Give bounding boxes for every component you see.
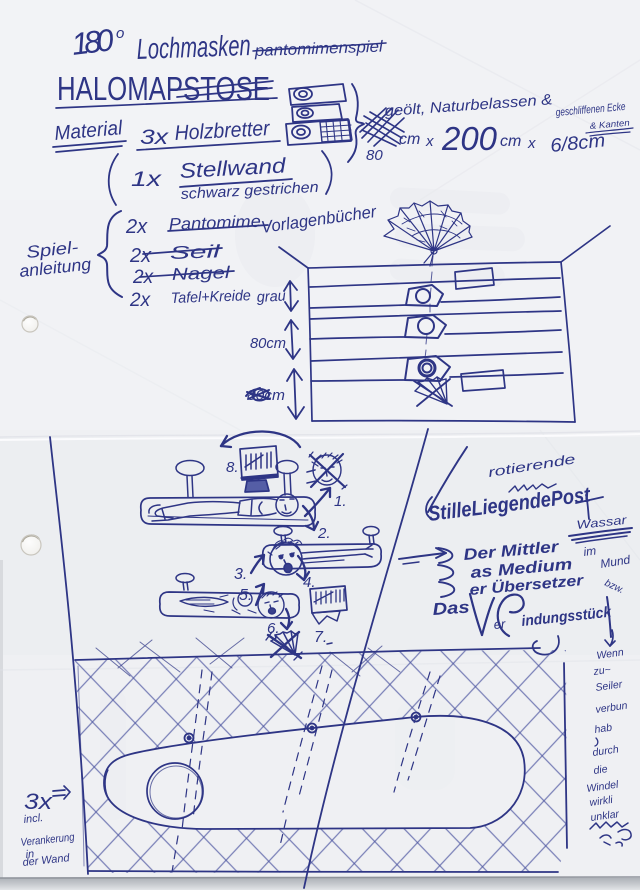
svg-text:grau: grau (256, 287, 286, 306)
svg-text:2x: 2x (129, 245, 152, 267)
svg-text:Lochmasken: Lochmasken (136, 30, 251, 66)
svg-text:80cm: 80cm (250, 335, 286, 352)
svg-text:200: 200 (441, 120, 498, 157)
svg-text:hab: hab (594, 722, 613, 736)
svg-text:die: die (593, 763, 609, 777)
svg-text:x: x (425, 133, 434, 150)
svg-text:3x: 3x (140, 126, 170, 149)
svg-text:80: 80 (366, 147, 383, 164)
svg-text:3x: 3x (24, 789, 53, 814)
svg-text:8.: 8. (226, 459, 239, 476)
svg-text:1x: 1x (131, 168, 163, 191)
svg-text:2x: 2x (129, 290, 152, 311)
svg-text:2x: 2x (125, 216, 148, 238)
svg-text:im: im (583, 544, 597, 559)
svg-text:cm: cm (399, 131, 420, 148)
svg-text:180: 180 (70, 22, 116, 62)
svg-text:incl.: incl. (23, 812, 44, 826)
svg-text:x: x (527, 135, 536, 152)
svg-text:er: er (493, 616, 506, 632)
svg-text:7.: 7. (314, 629, 327, 646)
svg-text:2.: 2. (317, 525, 331, 542)
svg-text:cm: cm (500, 133, 521, 150)
svg-text:HALOMAPSTOSE: HALOMAPSTOSE (57, 70, 270, 107)
svg-text:3.: 3. (234, 566, 247, 583)
svg-text:Tafel+Kreide: Tafel+Kreide (171, 287, 252, 307)
svg-text:o: o (116, 25, 124, 42)
svg-text:zu~: zu~ (592, 664, 612, 678)
svg-text:Das: Das (432, 597, 470, 619)
svg-text:1.: 1. (334, 493, 347, 510)
